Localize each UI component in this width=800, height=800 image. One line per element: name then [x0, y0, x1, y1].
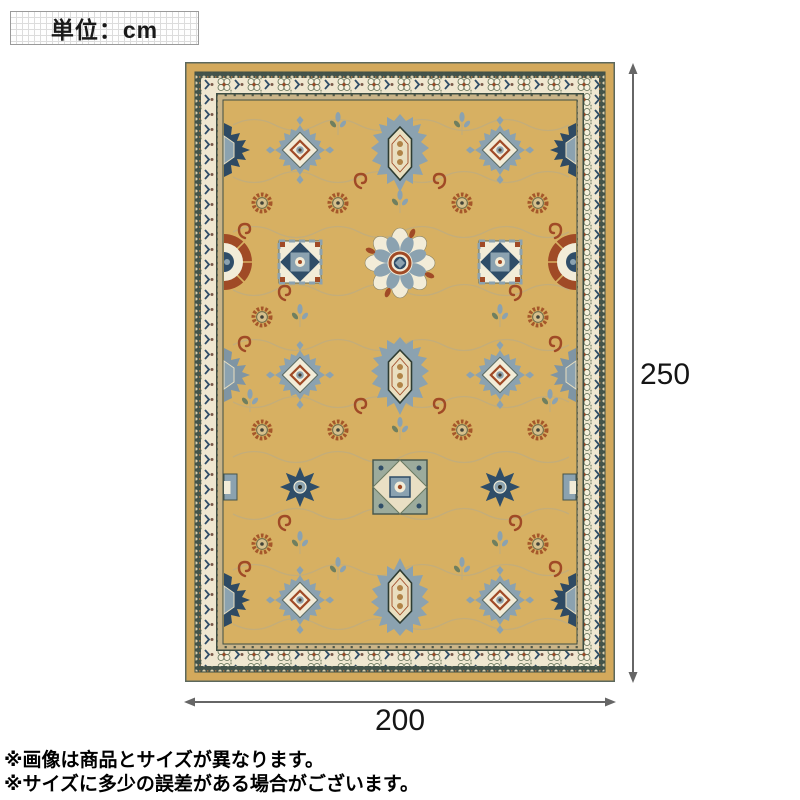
rug-image: [185, 62, 615, 682]
rug-graphic: [185, 62, 615, 682]
width-dimension-label: 200: [183, 704, 617, 738]
disclaimer-notes: ※画像は商品とサイズが異なります。 ※サイズに多少の誤差がある場合がございます。: [4, 749, 419, 797]
height-dimension-label: 250: [640, 358, 690, 392]
unit-label: 単位：cm: [51, 11, 158, 45]
disclaimer-line-2: ※サイズに多少の誤差がある場合がございます。: [4, 773, 419, 797]
unit-label-box: 単位：cm: [10, 11, 199, 45]
disclaimer-line-1: ※画像は商品とサイズが異なります。: [4, 749, 419, 773]
size-diagram: 単位：cm: [0, 0, 800, 800]
